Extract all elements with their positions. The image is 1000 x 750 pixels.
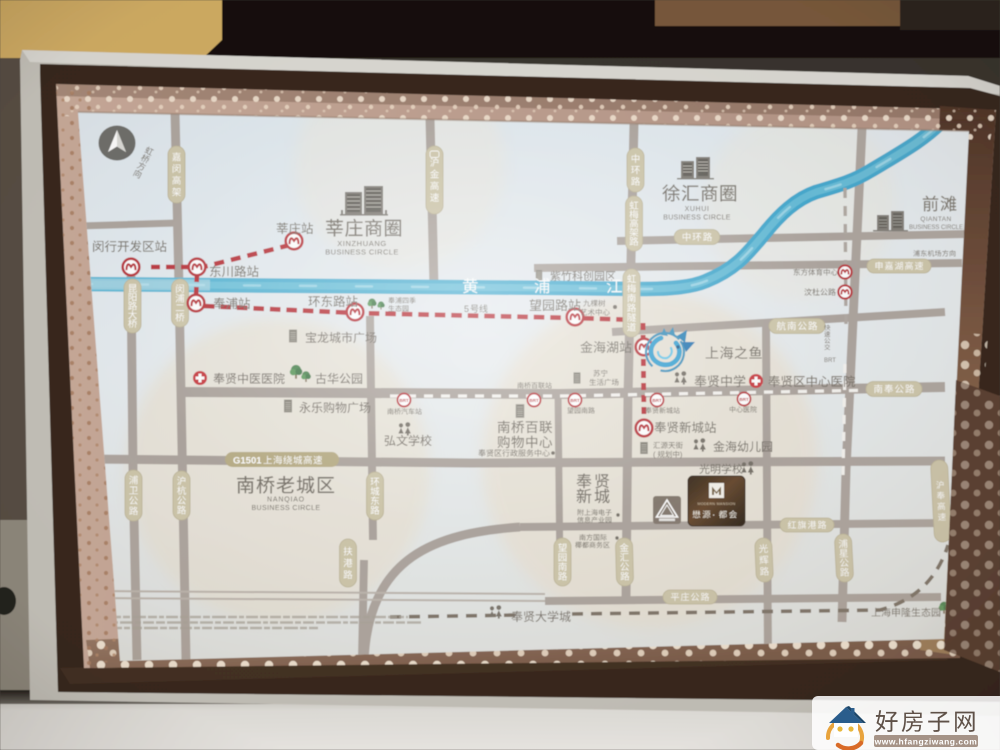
svg-text:www.hfangziwang.com: www.hfangziwang.com [874, 737, 978, 747]
